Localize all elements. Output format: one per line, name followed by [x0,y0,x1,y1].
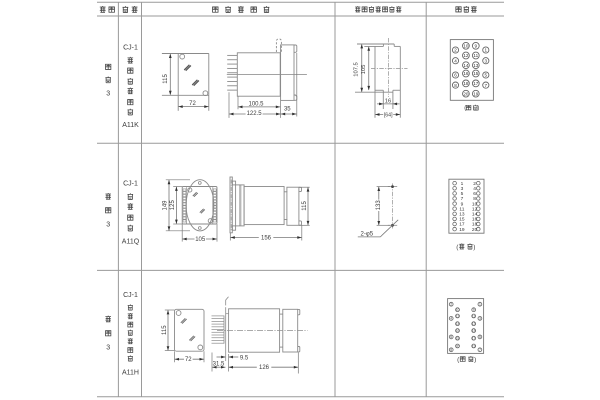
svg-text:107.5: 107.5 [354,62,360,77]
svg-text:19: 19 [459,227,465,233]
svg-text:72: 72 [185,357,192,363]
svg-text:11: 11 [472,314,476,318]
svg-text:6: 6 [473,191,476,197]
svg-text:9: 9 [461,201,464,207]
svg-text:19: 19 [473,91,479,96]
svg-text:4: 4 [454,58,457,63]
svg-text:18: 18 [456,337,460,341]
svg-text:19: 19 [472,344,476,348]
svg-text:13: 13 [473,63,479,68]
svg-text:12: 12 [463,53,469,58]
svg-text:15: 15 [459,217,465,223]
svg-text:3: 3 [106,344,110,351]
svg-text:122.5: 122.5 [247,111,263,117]
svg-text:12: 12 [472,206,478,212]
svg-text:1: 1 [479,303,481,307]
svg-text:3: 3 [479,317,481,321]
svg-text:20: 20 [463,91,469,96]
svg-text:115: 115 [302,201,308,211]
svg-text:2-φ5: 2-φ5 [361,231,374,237]
svg-text:126: 126 [259,365,270,371]
svg-text:): ) [477,106,479,112]
svg-text:9.5: 9.5 [240,355,249,361]
svg-text:1: 1 [461,181,464,187]
svg-text:): ) [474,356,476,363]
svg-text:7: 7 [485,83,488,88]
svg-text:3: 3 [106,90,110,97]
svg-text:20: 20 [456,344,460,348]
svg-text:11: 11 [459,206,464,212]
svg-text:125: 125 [170,200,176,211]
svg-text:3: 3 [461,186,464,192]
svg-text:18: 18 [463,81,469,86]
svg-text:35: 35 [284,106,291,112]
svg-text:8: 8 [473,196,476,202]
svg-text:16: 16 [385,98,391,104]
svg-text:6: 6 [454,73,457,78]
svg-text:133: 133 [376,200,382,211]
svg-text:8: 8 [454,83,457,88]
svg-text:115: 115 [163,74,169,84]
svg-text:11: 11 [473,53,478,58]
svg-text:4: 4 [473,186,476,192]
svg-text:(: ( [457,356,460,363]
svg-text:5: 5 [479,335,481,339]
svg-text:1: 1 [485,48,488,53]
svg-text:15: 15 [473,71,479,76]
svg-text:2: 2 [450,303,452,307]
svg-text:CJ-1: CJ-1 [123,44,138,51]
svg-text:105: 105 [361,65,367,75]
svg-text:12: 12 [456,314,460,318]
svg-text:14: 14 [456,322,460,326]
svg-text:31.5: 31.5 [213,362,225,368]
svg-text:7: 7 [461,196,464,202]
svg-text:18: 18 [472,222,478,228]
svg-text:A11K: A11K [122,122,139,129]
svg-text:A11H: A11H [122,370,139,377]
svg-text:9: 9 [475,44,478,49]
svg-text:A11Q: A11Q [122,239,140,246]
svg-text:3: 3 [485,58,488,63]
svg-text:(: ( [456,244,459,251]
svg-text:105: 105 [195,237,206,243]
svg-text:15: 15 [472,329,476,333]
svg-text:[64]: [64] [384,112,393,118]
svg-text:16: 16 [456,329,460,333]
svg-text:115: 115 [162,325,168,335]
svg-text:6: 6 [450,335,452,339]
svg-text:3: 3 [106,221,110,228]
svg-text:16: 16 [463,71,469,76]
svg-text:20: 20 [472,227,478,233]
svg-text:72: 72 [189,101,196,107]
svg-text:149: 149 [163,200,169,211]
svg-text:4: 4 [450,317,452,321]
svg-text:CJ-1: CJ-1 [123,292,138,299]
svg-text:2: 2 [454,48,457,53]
svg-text:17: 17 [459,222,465,228]
svg-text:14: 14 [463,63,469,68]
svg-text:156: 156 [261,235,272,241]
svg-text:10: 10 [463,44,469,49]
svg-text:5: 5 [461,191,464,197]
svg-text:CJ-1: CJ-1 [123,180,138,187]
svg-text:9: 9 [473,308,475,312]
svg-text:17: 17 [472,337,476,341]
svg-text:): ) [473,244,475,251]
svg-text:16: 16 [472,217,478,223]
svg-text:10: 10 [456,308,460,312]
svg-text:5: 5 [485,73,488,78]
svg-text:13: 13 [459,212,465,218]
svg-text:100.5: 100.5 [248,101,264,107]
svg-text:8: 8 [450,348,452,352]
svg-text:13: 13 [472,322,476,326]
svg-text:2: 2 [473,181,476,187]
svg-text:17: 17 [473,81,479,86]
svg-text:7: 7 [479,348,481,352]
svg-text:10: 10 [472,201,478,207]
svg-text:14: 14 [472,212,478,218]
